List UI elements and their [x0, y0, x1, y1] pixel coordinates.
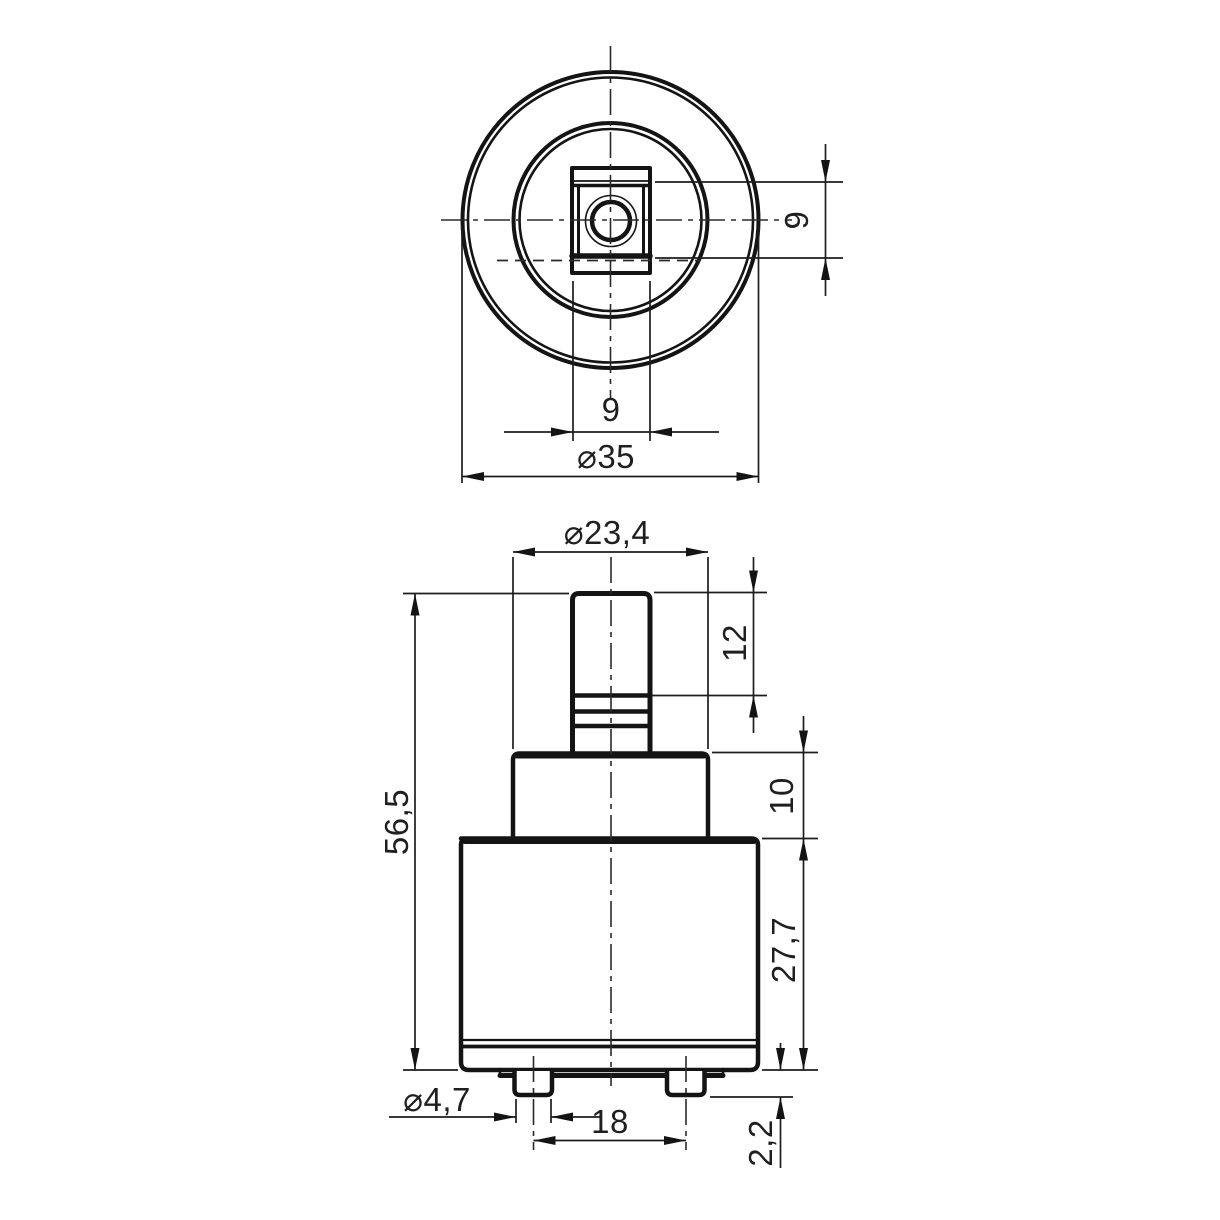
- arrowhead: [534, 1136, 556, 1145]
- dim-tab-protrusion-label: 2,2: [742, 1119, 779, 1166]
- dim-stem-height-label: 12: [716, 624, 753, 662]
- dim-tab-diameter: ⌀4,7: [389, 1081, 601, 1123]
- arrowhead: [776, 1097, 785, 1119]
- arrowhead: [686, 548, 708, 557]
- drawing-sheet: 9 9 ⌀35: [0, 0, 1220, 1220]
- arrowhead: [462, 472, 484, 481]
- arrowhead: [749, 571, 758, 593]
- front-view: ⌀23,4 12 10 27,7: [378, 514, 818, 1168]
- dim-tab-spacing: 18: [534, 1103, 687, 1145]
- arrowhead: [650, 428, 672, 437]
- body-outline: [461, 839, 758, 1071]
- arrowhead: [737, 472, 759, 481]
- dim-tab-diameter-label: ⌀4,7: [403, 1081, 471, 1118]
- dim-square-width: 9: [504, 281, 719, 441]
- dim-stem-height: 12: [652, 557, 767, 733]
- dim-overall-height-label: 56,5: [378, 789, 415, 855]
- arrowhead: [799, 839, 808, 861]
- arrowhead: [749, 696, 758, 718]
- dim-square-width-label: 9: [602, 391, 621, 428]
- arrowhead: [411, 1048, 420, 1070]
- dim-shoulder-height-label: 10: [763, 777, 800, 815]
- arrowhead: [776, 1048, 785, 1070]
- arrowhead: [821, 258, 830, 280]
- dim-square-height-label: 9: [778, 211, 815, 230]
- top-view: 9 9 ⌀35: [441, 46, 843, 483]
- arrowhead: [411, 594, 420, 616]
- dim-outer-diameter-label: ⌀35: [577, 438, 635, 475]
- arrowhead: [821, 160, 830, 182]
- arrowhead: [799, 1048, 808, 1070]
- arrowhead: [551, 428, 573, 437]
- arrowhead: [799, 731, 808, 753]
- technical-drawing-svg: 9 9 ⌀35: [0, 0, 1220, 1220]
- dim-shoulder-diameter-label: ⌀23,4: [564, 514, 651, 551]
- arrowhead: [664, 1136, 686, 1145]
- dim-body-height-label: 27,7: [765, 917, 802, 983]
- arrowhead: [513, 548, 535, 557]
- arrowhead: [494, 1113, 516, 1122]
- arrowhead: [551, 1113, 573, 1122]
- dim-tab-spacing-label: 18: [591, 1103, 629, 1140]
